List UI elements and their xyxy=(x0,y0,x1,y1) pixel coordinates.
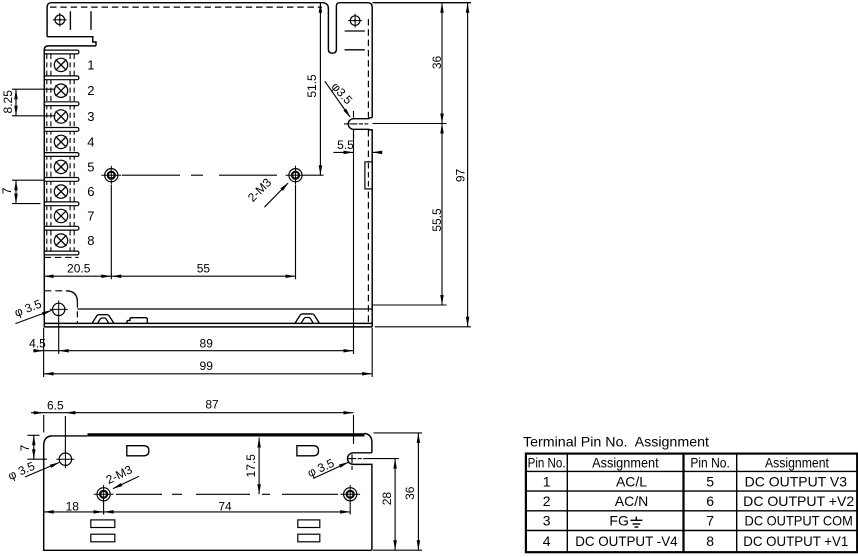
svg-text:36: 36 xyxy=(403,486,417,500)
svg-text:Assignment: Assignment xyxy=(592,455,659,471)
svg-text:AC/L: AC/L xyxy=(616,473,647,489)
svg-text:7: 7 xyxy=(87,209,94,224)
svg-text:3: 3 xyxy=(87,109,94,124)
svg-text:4.5: 4.5 xyxy=(29,336,46,350)
svg-text:20.5: 20.5 xyxy=(67,261,91,275)
svg-text:1: 1 xyxy=(87,57,94,72)
svg-text:AC/N: AC/N xyxy=(615,493,648,509)
svg-text:7: 7 xyxy=(0,187,14,194)
svg-text:6.5: 6.5 xyxy=(47,398,64,412)
svg-text:28: 28 xyxy=(380,492,394,506)
svg-text:36: 36 xyxy=(430,56,444,70)
svg-text:φ 3.5: φ 3.5 xyxy=(12,297,43,320)
svg-text:5: 5 xyxy=(87,159,94,174)
svg-text:55: 55 xyxy=(197,261,211,275)
svg-text:4: 4 xyxy=(87,134,94,149)
svg-text:Terminal Pin No. Assignment: Terminal Pin No. Assignment xyxy=(523,433,709,449)
svg-text:89: 89 xyxy=(200,336,214,350)
svg-text:Pin No.: Pin No. xyxy=(690,455,730,471)
svg-text:4: 4 xyxy=(543,533,551,549)
svg-text:3: 3 xyxy=(543,513,551,529)
svg-text:6: 6 xyxy=(87,184,94,199)
svg-text:5.5: 5.5 xyxy=(337,138,354,152)
svg-text:φ3.5: φ3.5 xyxy=(328,80,355,108)
svg-text:7: 7 xyxy=(18,444,32,451)
svg-text:8: 8 xyxy=(706,533,714,549)
svg-text:5: 5 xyxy=(706,473,714,489)
svg-text:FG: FG xyxy=(609,513,628,529)
svg-text:2: 2 xyxy=(543,493,551,509)
svg-text:51.5: 51.5 xyxy=(305,74,319,98)
svg-text:DC OUTPUT V3: DC OUTPUT V3 xyxy=(745,473,848,489)
svg-text:17.5: 17.5 xyxy=(244,454,258,478)
svg-text:2-M3: 2-M3 xyxy=(104,462,135,487)
svg-text:74: 74 xyxy=(218,499,232,513)
svg-text:8.25: 8.25 xyxy=(1,90,15,114)
svg-text:DC OUTPUT COM: DC OUTPUT COM xyxy=(745,513,853,529)
svg-text:DC OUTPUT +V1: DC OUTPUT +V1 xyxy=(743,533,848,549)
svg-text:φ 3.5: φ 3.5 xyxy=(6,459,37,483)
svg-text:18: 18 xyxy=(66,499,80,513)
svg-text:Assignment: Assignment xyxy=(765,455,829,471)
svg-text:7: 7 xyxy=(706,513,714,529)
svg-text:DC OUTPUT +V2: DC OUTPUT +V2 xyxy=(743,493,854,509)
svg-text:φ 3.5: φ 3.5 xyxy=(305,456,336,480)
svg-text:8: 8 xyxy=(87,233,94,248)
svg-text:2-M3: 2-M3 xyxy=(245,175,274,204)
svg-text:6: 6 xyxy=(706,493,714,509)
svg-text:99: 99 xyxy=(200,359,214,373)
svg-text:97: 97 xyxy=(453,169,467,183)
svg-text:Pin No.: Pin No. xyxy=(528,455,566,471)
svg-text:1: 1 xyxy=(543,473,551,489)
svg-text:55.5: 55.5 xyxy=(430,208,444,232)
svg-text:DC OUTPUT -V4: DC OUTPUT -V4 xyxy=(575,533,678,549)
svg-text:2: 2 xyxy=(87,83,94,98)
svg-text:87: 87 xyxy=(205,397,219,411)
